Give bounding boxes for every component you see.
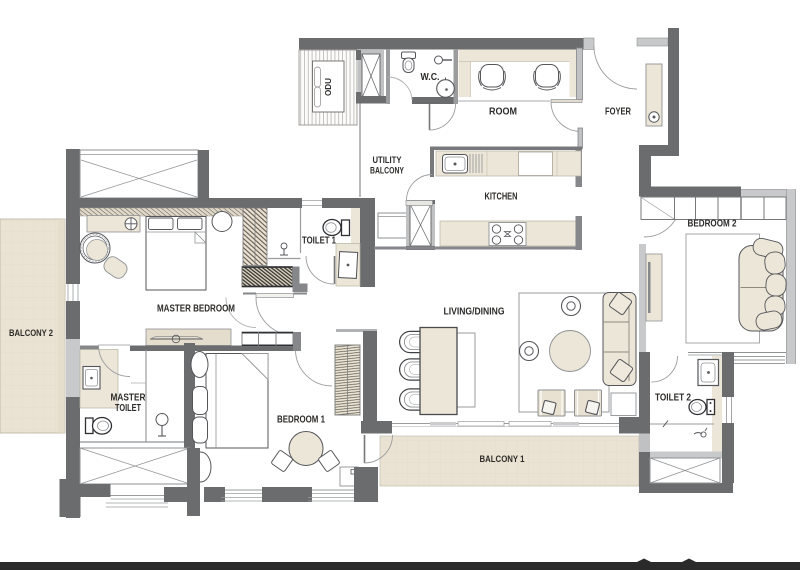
- svg-text:ROOM: ROOM: [489, 107, 517, 118]
- svg-text:KITCHEN: KITCHEN: [485, 192, 518, 203]
- svg-text:BEDROOM 1: BEDROOM 1: [277, 415, 325, 426]
- svg-text:MASTER: MASTER: [111, 393, 147, 404]
- svg-text:MASTER BEDROOM: MASTER BEDROOM: [157, 304, 235, 315]
- svg-text:LIVING/DINING: LIVING/DINING: [444, 307, 505, 318]
- svg-text:BALCONY 1: BALCONY 1: [480, 454, 526, 465]
- svg-text:TOILET 2: TOILET 2: [655, 393, 691, 404]
- svg-text:W.C.: W.C.: [421, 72, 440, 83]
- svg-text:ODU: ODU: [323, 78, 333, 96]
- svg-text:TOILET: TOILET: [115, 403, 141, 414]
- svg-text:FOYER: FOYER: [605, 107, 632, 118]
- svg-text:BALCONY: BALCONY: [370, 166, 404, 176]
- svg-text:BEDROOM 2: BEDROOM 2: [688, 219, 737, 230]
- svg-text:TOILET 1: TOILET 1: [302, 236, 336, 247]
- svg-text:UTILITY: UTILITY: [373, 155, 402, 165]
- svg-text:BALCONY 2: BALCONY 2: [9, 328, 53, 339]
